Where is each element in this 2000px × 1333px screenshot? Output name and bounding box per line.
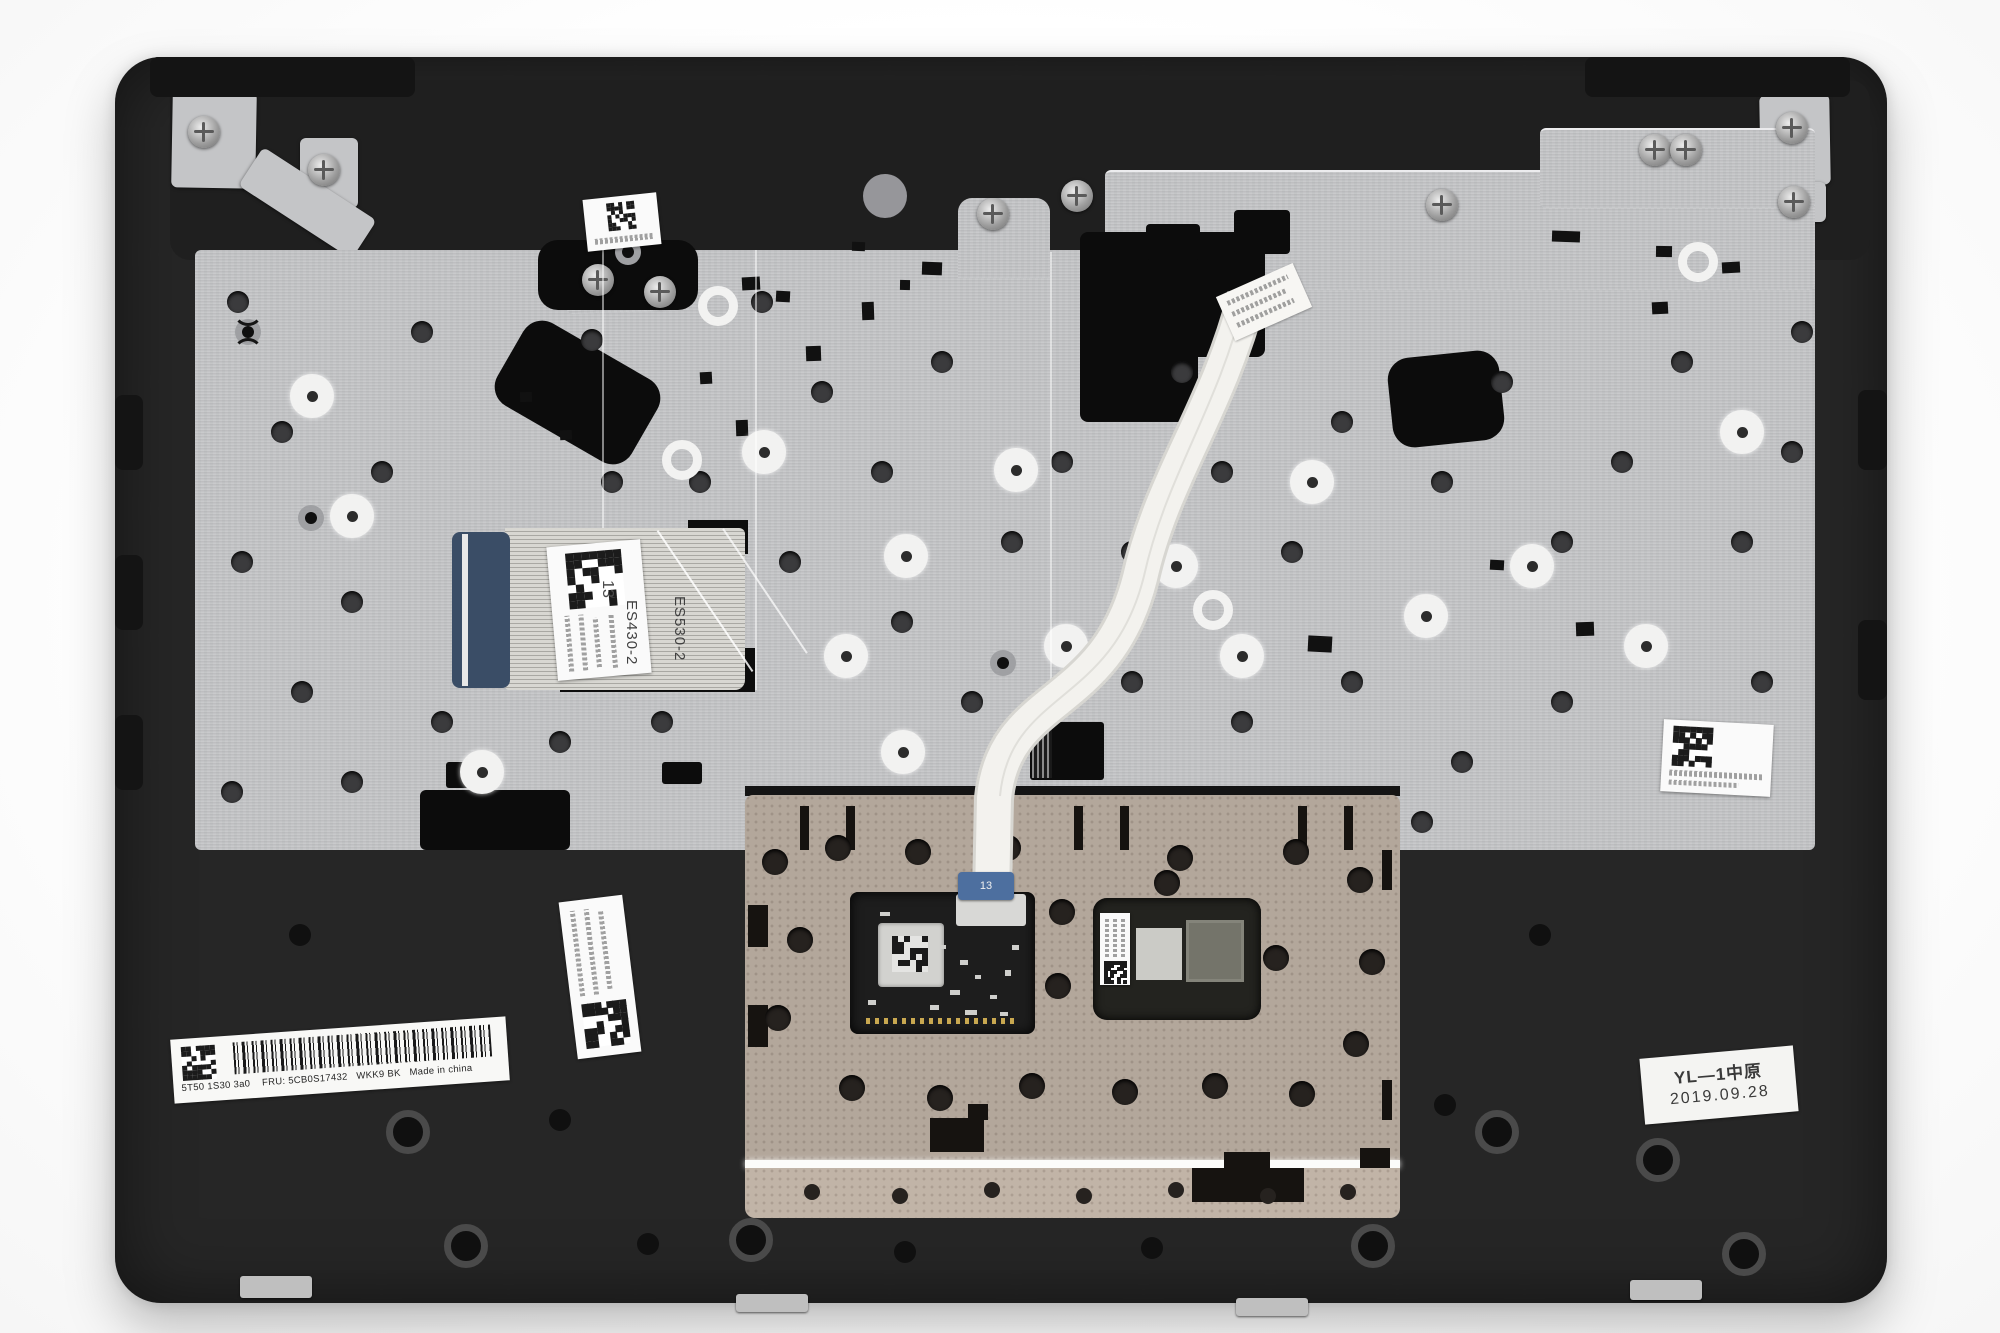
label-microtext xyxy=(598,911,612,989)
qr-cell xyxy=(1689,761,1695,767)
qr-cell xyxy=(201,1055,206,1060)
part-origin: Made in china xyxy=(409,1063,473,1078)
touchpad-ribbon xyxy=(992,296,1247,896)
qr-cell xyxy=(632,225,636,229)
qr-cell xyxy=(211,1069,216,1074)
qr-cell xyxy=(592,1040,600,1048)
upper-label-qr-code xyxy=(606,201,637,232)
label-microtext xyxy=(570,911,585,997)
qr-cell xyxy=(211,1059,216,1064)
part-label-qr-code xyxy=(181,1045,217,1081)
qr-cell xyxy=(617,1037,625,1045)
plate-qr-label xyxy=(1660,719,1774,797)
label-microtext xyxy=(1669,780,1739,789)
upper-plate-label xyxy=(582,192,661,251)
label-microtext xyxy=(1669,770,1763,781)
qr-cell xyxy=(1707,739,1713,745)
connector-pull-tab: 13 xyxy=(958,872,1014,900)
qr-cell xyxy=(191,1056,196,1061)
qr-cell xyxy=(207,1074,212,1079)
photo-stage: 13 ES430-2 ES530-2 13 xyxy=(0,0,2000,1333)
qr-cell xyxy=(632,217,636,221)
qr-cell xyxy=(210,1050,215,1055)
qr-cell xyxy=(616,226,620,230)
qr-cell xyxy=(630,205,634,209)
label-microtext xyxy=(595,233,653,245)
qr-cell xyxy=(1701,744,1707,750)
part-fru: FRU: 5CB0S17432 xyxy=(262,1072,348,1089)
qr-cell xyxy=(1706,762,1712,768)
label-microtext xyxy=(584,909,599,995)
vertical-label-qr-code xyxy=(581,999,630,1048)
part-serial: 5T50 1S30 3a0 xyxy=(181,1078,250,1094)
touchpad-ribbon-svg xyxy=(0,0,2000,1333)
qr-cell xyxy=(1677,760,1683,766)
plate-label-qr-code xyxy=(1672,726,1714,768)
part-model-code: WKK9 BK xyxy=(356,1068,401,1082)
qc-date-stamp: YL—1中原 2019.09.28 xyxy=(1639,1045,1798,1124)
pull-tab-marking: 13 xyxy=(980,880,992,892)
